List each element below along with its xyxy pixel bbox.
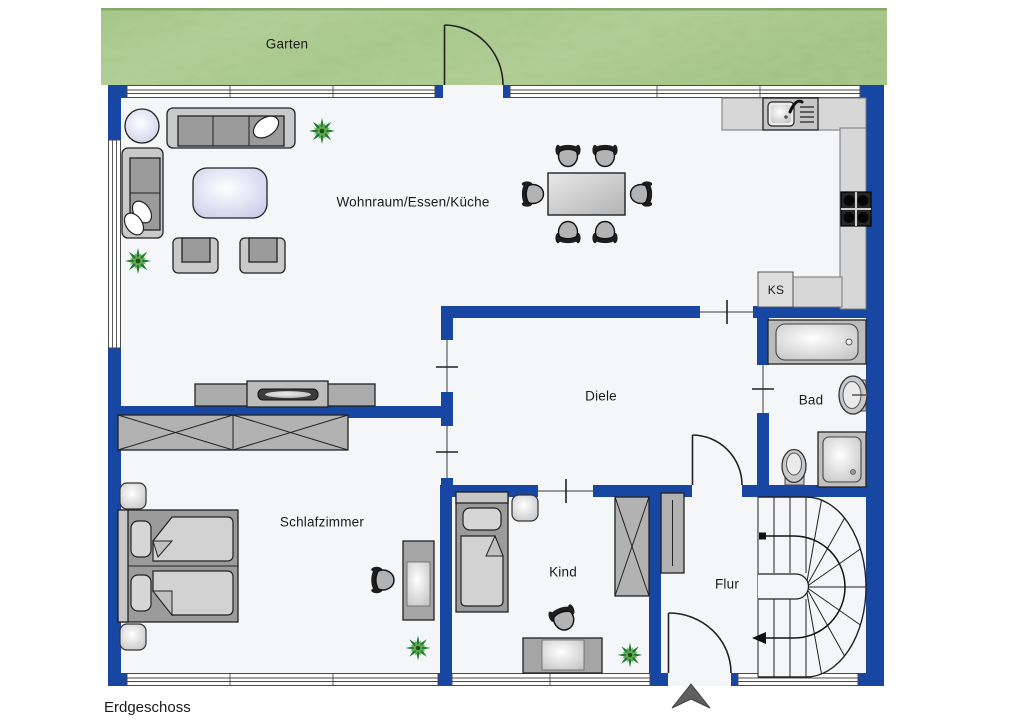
north-arrow-icon [672,684,710,708]
tv-sideboard [195,381,375,407]
stair-well-edge [758,574,809,599]
plant-icon [125,248,151,274]
coffee-table [193,168,267,218]
pillow [131,521,151,557]
window-bottom-child [452,674,650,686]
window-top-right [510,86,860,98]
window-left [109,140,121,348]
staircase [752,497,866,677]
sofa-three-seat [167,108,295,148]
washbasin [839,376,867,414]
room-label-corridor: Flur [715,577,739,592]
fridge-label: KS [768,283,784,297]
toilet [782,450,806,486]
floor-title: Erdgeschoss [104,699,191,716]
room-label-child: Kind [549,565,577,580]
window-top-left [127,86,435,98]
nightstand [120,624,146,650]
wardrobe-bedroom [118,415,348,450]
double-bed [118,510,238,622]
garden-label: Garten [266,37,308,52]
bedroom-desk [403,541,434,620]
stove [841,192,871,226]
room-label-hallway: Diele [585,389,617,404]
garden-door-threshold [443,85,503,98]
side-table-round [125,109,159,143]
armchair [240,238,285,273]
kitchen-sink [763,98,818,130]
sofa-two-seat [121,148,163,238]
plant-icon [406,636,431,661]
floor-plan-drawing [0,0,1024,724]
corridor-shelf [661,493,684,573]
pillow [463,508,501,530]
armchair [173,238,218,273]
room-label-bath: Bad [799,393,824,408]
entrance-door-threshold [668,673,731,686]
dining-table [548,173,625,215]
bathtub [768,320,866,364]
child-desk [523,638,602,673]
nightstand [512,495,538,521]
nightstand [120,483,146,509]
floor-plan-page: Garten Wohnraum/Essen/Küche Diele Bad KS… [0,0,1024,724]
shower [818,432,866,487]
plant-icon [618,643,643,668]
child-bed [456,492,508,612]
pillow [131,575,151,611]
room-label-bedroom: Schlafzimmer [280,515,364,530]
garden-area [101,8,887,85]
window-bottom-bedroom [127,674,438,686]
room-label-living: Wohnraum/Essen/Küche [336,195,489,210]
plant-icon [309,118,335,144]
wardrobe-child [615,497,649,596]
